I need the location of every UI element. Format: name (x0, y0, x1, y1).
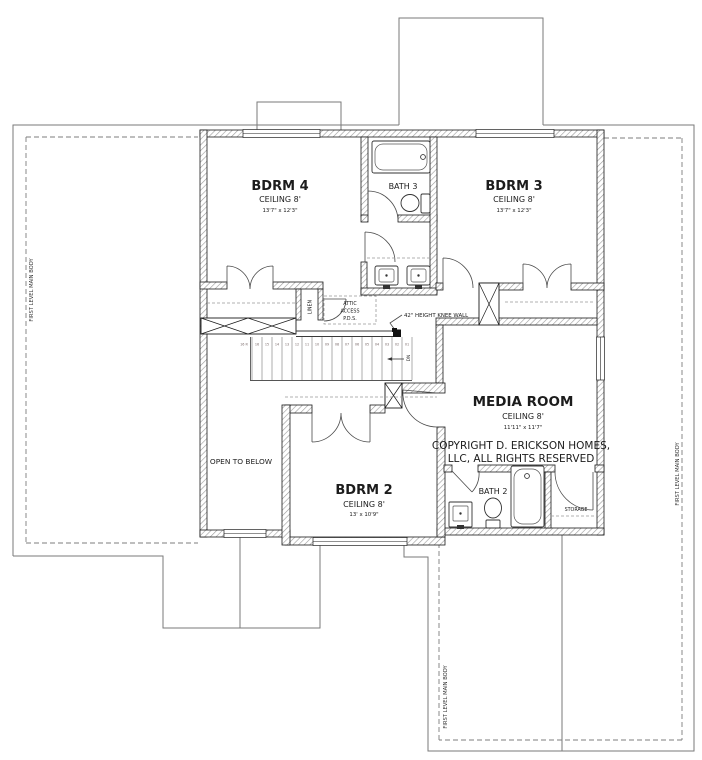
media-room-dims: 11'11" x 11'7" (504, 425, 543, 431)
first-level-label-bottom: FIRST LEVEL MAIN BODY (443, 665, 449, 729)
bathtub-bath3 (372, 141, 430, 173)
bath2-label: BATH 2 (479, 487, 508, 496)
storage-label: STORAGE (565, 507, 588, 513)
copyright-line2: LLC, ALL RIGHTS RESERVED (448, 453, 595, 465)
media-room-ceiling: CEILING 8' (502, 412, 544, 421)
bdrm4-ceiling: CEILING 8' (259, 195, 301, 204)
stair-down-arrow (387, 357, 404, 360)
bdrm4-dims: 13'7" x 12'3" (262, 208, 297, 214)
labels: BDRM 4 CEILING 8' 13'7" x 12'3" BDRM 3 C… (29, 179, 681, 729)
window-bdrm3 (476, 130, 554, 138)
attic-access-line2: ACCESS (340, 309, 359, 315)
stair-tread-number: 15 (265, 343, 269, 347)
first-level-label-right: FIRST LEVEL MAIN BODY (675, 442, 681, 506)
stair-tread-number: 06 (355, 343, 359, 347)
bathtub-bath2 (511, 466, 544, 527)
bdrm3-dims: 13'7" x 12'3" (496, 208, 531, 214)
window-bdrm2 (313, 538, 407, 546)
first-level-label-left: FIRST LEVEL MAIN BODY (29, 258, 35, 322)
door-bdrm4 (227, 266, 273, 289)
stair-tread-number: 16 (255, 343, 259, 347)
linen-label: LINEN (308, 299, 314, 314)
floor-plan-page: 16 R16151413121110090807060504030201 DN (0, 0, 702, 760)
cross-braced-post-landing (385, 383, 402, 408)
stair-tread-number: 02 (395, 343, 399, 347)
window-media-room (597, 337, 605, 380)
toilet-bath2 (485, 498, 502, 528)
door-bath3 (368, 191, 398, 221)
vanity-bath2 (449, 502, 472, 529)
stair-tread-number: 14 (275, 343, 279, 347)
bdrm3-ceiling: CEILING 8' (493, 195, 535, 204)
door-storage (555, 472, 593, 510)
stair-tread-number: 11 (305, 343, 309, 347)
door-vanity-hall (365, 232, 395, 262)
stair-tread-number: 04 (375, 343, 379, 347)
stair-treads: 16 R16151413121110090807060504030201 (240, 337, 412, 380)
stair-tread-number: 08 (335, 343, 339, 347)
door-bath2 (452, 471, 479, 492)
open-to-below-label: OPEN TO BELOW (210, 457, 273, 466)
attic-access-line1: ATTIC (343, 301, 357, 307)
stair-tread-number: 05 (365, 343, 369, 347)
stair-tread-number: 10 (315, 343, 319, 347)
bdrm2-ceiling: CEILING 8' (343, 500, 385, 509)
media-room-title: MEDIA ROOM (473, 394, 574, 410)
bdrm3-title: BDRM 3 (485, 179, 542, 194)
cross-braced-post-bdrm3 (479, 283, 499, 325)
stair-direction-label: DN (406, 355, 411, 361)
stair-tread-number: 01 (405, 343, 409, 347)
toilet-bath3 (401, 194, 430, 213)
window-open-to-below (224, 530, 266, 538)
stair-tread-number: 12 (295, 343, 299, 347)
first-level-outline (13, 18, 694, 751)
stair-tread-number: 07 (345, 343, 349, 347)
double-vanity-hall (375, 266, 430, 289)
door-bdrm3 (443, 258, 473, 288)
stair-tread-number: 13 (285, 343, 289, 347)
bdrm4-title: BDRM 4 (251, 179, 308, 194)
door-media-room (403, 390, 437, 427)
door-bdrm2 (312, 413, 370, 442)
bdrm2-title: BDRM 2 (335, 483, 392, 498)
second-floor-plan: 16 R16151413121110090807060504030201 DN (0, 0, 702, 760)
cross-braced-wall-stair (201, 318, 296, 334)
copyright-line1: COPYRIGHT D. ERICKSON HOMES, (432, 440, 610, 452)
window-bdrm4 (243, 130, 320, 138)
knee-wall-text: 42" HEIGHT KNEE WALL (404, 313, 468, 319)
bath3-label: BATH 3 (389, 182, 418, 191)
stair-tread-number: 09 (325, 343, 329, 347)
attic-access-line3: P.D.S. (343, 316, 356, 322)
stairs: 16 R16151413121110090807060504030201 DN (240, 330, 412, 381)
stair-tread-number: 03 (385, 343, 389, 347)
stair-riser-count: 16 R (240, 343, 248, 347)
bdrm2-dims: 13' x 10'9" (349, 512, 378, 518)
door-bdrm3-closet (523, 264, 571, 288)
